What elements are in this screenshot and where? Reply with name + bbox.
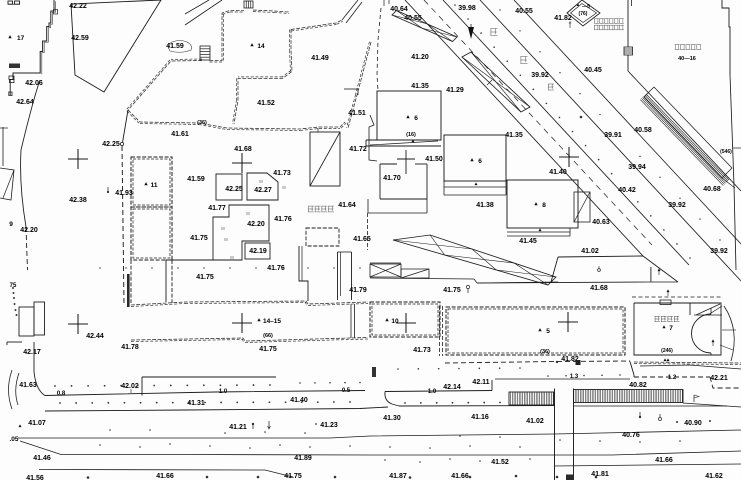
svg-text:41.93: 41.93 xyxy=(115,190,133,197)
svg-text:41.35: 41.35 xyxy=(411,83,429,90)
svg-text:40.68: 40.68 xyxy=(703,186,721,193)
svg-text:41.51: 41.51 xyxy=(348,110,366,117)
svg-text:41.76: 41.76 xyxy=(274,216,292,223)
svg-text:1.3: 1.3 xyxy=(570,374,579,380)
svg-text:(546): (546) xyxy=(720,149,732,155)
svg-text:40.63: 40.63 xyxy=(592,219,610,226)
svg-text:40.55: 40.55 xyxy=(515,8,533,15)
svg-text:11: 11 xyxy=(151,182,158,189)
svg-text:9: 9 xyxy=(9,221,13,228)
svg-text:14: 14 xyxy=(257,43,265,50)
svg-text:0.5: 0.5 xyxy=(342,388,351,394)
svg-text:41.75: 41.75 xyxy=(196,274,214,281)
svg-text:40.76: 40.76 xyxy=(622,432,640,439)
svg-text:42.27: 42.27 xyxy=(254,187,272,194)
svg-text:41.16: 41.16 xyxy=(471,414,489,421)
svg-text:41.21: 41.21 xyxy=(229,424,247,431)
svg-text:6: 6 xyxy=(414,115,418,122)
svg-text:41.75: 41.75 xyxy=(259,346,277,353)
svg-text:41.64: 41.64 xyxy=(338,202,356,209)
svg-text:41.23: 41.23 xyxy=(320,422,338,429)
svg-text:41.65: 41.65 xyxy=(353,236,371,243)
svg-text:(36): (36) xyxy=(197,120,207,126)
svg-text:(16): (16) xyxy=(406,132,416,138)
svg-text:42.25: 42.25 xyxy=(225,186,243,193)
svg-text:1.0: 1.0 xyxy=(219,389,228,395)
svg-text:41.75: 41.75 xyxy=(443,287,461,294)
svg-text:14–15: 14–15 xyxy=(263,318,281,325)
svg-text:.05: .05 xyxy=(9,436,18,443)
svg-text:41.66: 41.66 xyxy=(451,473,469,480)
svg-text:41.66: 41.66 xyxy=(156,473,174,480)
svg-text:41.40: 41.40 xyxy=(549,169,567,176)
svg-text:42.25: 42.25 xyxy=(102,141,120,148)
svg-text:40.45: 40.45 xyxy=(584,67,602,74)
svg-text:41.20: 41.20 xyxy=(411,54,429,61)
svg-text:41.68: 41.68 xyxy=(234,146,252,153)
svg-text:39.91: 39.91 xyxy=(604,132,622,139)
svg-text:41.59: 41.59 xyxy=(166,43,184,50)
svg-text:17: 17 xyxy=(17,35,25,42)
svg-text:75: 75 xyxy=(10,283,17,289)
svg-text:—5: —5 xyxy=(582,4,590,10)
svg-text:39.92: 39.92 xyxy=(710,248,728,255)
svg-text:41.61: 41.61 xyxy=(171,131,189,138)
svg-text:5: 5 xyxy=(546,328,550,335)
svg-text:39.92: 39.92 xyxy=(668,202,686,209)
svg-text:(246): (246) xyxy=(661,348,673,354)
svg-text:40.42: 40.42 xyxy=(618,187,636,194)
svg-text:41.38: 41.38 xyxy=(476,202,494,209)
svg-text:42.59: 42.59 xyxy=(71,35,89,42)
svg-text:10: 10 xyxy=(391,318,399,325)
svg-text:41.31: 41.31 xyxy=(187,400,205,407)
svg-text:39.92: 39.92 xyxy=(531,72,549,79)
svg-text:42.38: 42.38 xyxy=(69,197,87,204)
svg-text:41.62: 41.62 xyxy=(705,473,723,480)
svg-text:39.94: 39.94 xyxy=(628,164,646,171)
svg-text:40—16: 40—16 xyxy=(678,56,696,62)
svg-text:41.02: 41.02 xyxy=(581,248,599,255)
svg-text:41.07: 41.07 xyxy=(28,420,46,427)
svg-text:41.30: 41.30 xyxy=(383,415,401,422)
svg-text:41.73: 41.73 xyxy=(413,347,431,354)
svg-text:41.52: 41.52 xyxy=(257,100,275,107)
svg-text:41.77: 41.77 xyxy=(208,205,226,212)
svg-text:41.89: 41.89 xyxy=(294,455,312,462)
svg-text:(36): (36) xyxy=(540,349,550,355)
svg-text:42.19: 42.19 xyxy=(249,248,267,255)
svg-text:42.14: 42.14 xyxy=(443,384,461,391)
svg-text:41.73: 41.73 xyxy=(273,170,291,177)
svg-text:41.75: 41.75 xyxy=(190,235,208,242)
svg-text:40.82: 40.82 xyxy=(629,382,647,389)
svg-text:41.59: 41.59 xyxy=(187,176,205,183)
svg-text:41.81: 41.81 xyxy=(591,471,609,478)
svg-text:1.2: 1.2 xyxy=(668,375,677,381)
svg-text:41.40: 41.40 xyxy=(290,397,308,404)
svg-text:41.87: 41.87 xyxy=(389,473,407,480)
svg-text:42.20: 42.20 xyxy=(247,221,265,228)
svg-text:41.50: 41.50 xyxy=(425,156,443,163)
svg-text:42.11: 42.11 xyxy=(472,379,489,386)
svg-text:41.70: 41.70 xyxy=(383,175,401,182)
svg-text:42.21: 42.21 xyxy=(710,375,728,382)
svg-text:42.06: 42.06 xyxy=(25,80,43,87)
svg-text:41.46: 41.46 xyxy=(33,455,51,462)
svg-text:41.78: 41.78 xyxy=(121,344,139,351)
svg-text:41.66: 41.66 xyxy=(655,457,673,464)
svg-text:41.56: 41.56 xyxy=(26,475,44,480)
svg-text:41.49: 41.49 xyxy=(311,55,329,62)
svg-text:41.72: 41.72 xyxy=(349,146,367,153)
svg-text:6: 6 xyxy=(478,158,482,165)
svg-text:1.0: 1.0 xyxy=(428,389,437,395)
svg-text:39.98: 39.98 xyxy=(458,5,476,12)
svg-text:42.02: 42.02 xyxy=(121,383,139,390)
svg-text:41.82: 41.82 xyxy=(554,15,572,22)
svg-text:41.45: 41.45 xyxy=(519,238,537,245)
svg-text:(66): (66) xyxy=(263,333,273,339)
svg-text:40.90: 40.90 xyxy=(684,420,702,427)
svg-text:41.02: 41.02 xyxy=(526,418,544,425)
svg-text:0.8: 0.8 xyxy=(57,391,66,397)
svg-text:41.29: 41.29 xyxy=(446,87,464,94)
svg-text:41.79: 41.79 xyxy=(349,287,367,294)
svg-text:42.20: 42.20 xyxy=(20,227,38,234)
svg-text:41.68: 41.68 xyxy=(590,285,608,292)
svg-text:8: 8 xyxy=(542,202,546,209)
svg-text:(76): (76) xyxy=(579,11,588,17)
svg-text:42.17: 42.17 xyxy=(23,349,41,356)
svg-text:41.35: 41.35 xyxy=(505,132,523,139)
svg-text:41.52: 41.52 xyxy=(491,459,509,466)
svg-text:41.63: 41.63 xyxy=(19,382,37,389)
svg-text:41.75: 41.75 xyxy=(284,473,302,480)
svg-text:40.58: 40.58 xyxy=(634,127,652,134)
svg-text:42.44: 42.44 xyxy=(86,333,104,340)
svg-text:7: 7 xyxy=(669,325,673,332)
svg-text:42.64: 42.64 xyxy=(16,99,34,106)
